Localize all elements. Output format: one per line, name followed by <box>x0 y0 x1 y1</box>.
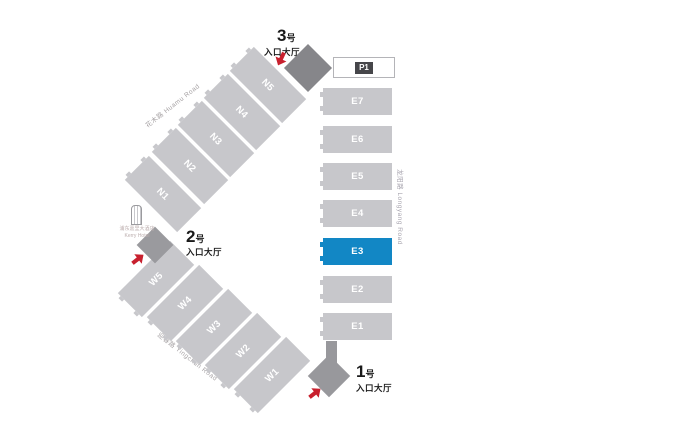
hall-e5[interactable]: E5 <box>323 163 392 190</box>
entrance-1-number: 1号 <box>356 363 374 380</box>
expo-floorplan-map: 花木路 Huamu Road 龙阳路 Longyang Road 迎春路 Yin… <box>0 0 700 430</box>
hall-e7[interactable]: E7 <box>323 88 392 115</box>
hall-e6[interactable]: E6 <box>323 126 392 153</box>
hotel-building-icon <box>131 205 142 225</box>
hotel-name-en: Kerry Hotel <box>109 233 165 240</box>
parking-badge: P1 <box>355 62 373 74</box>
hall-e4[interactable]: E4 <box>323 200 392 227</box>
entrance-3-number: 3号 <box>277 27 295 44</box>
hall-e3-selected[interactable]: E3 <box>323 238 392 265</box>
hotel-label: 浦东嘉里大酒店 Kerry Hotel <box>109 226 165 239</box>
entrance-2-number: 2号 <box>186 228 204 245</box>
hall-e2[interactable]: E2 <box>323 276 392 303</box>
entrance-2-label: 入口大厅 <box>186 246 222 258</box>
parking-area: P1 <box>333 57 395 78</box>
hall-e1[interactable]: E1 <box>323 313 392 340</box>
entrance-1-label: 入口大厅 <box>356 382 392 394</box>
road-label-longyang: 龙阳路 Longyang Road <box>396 152 406 262</box>
